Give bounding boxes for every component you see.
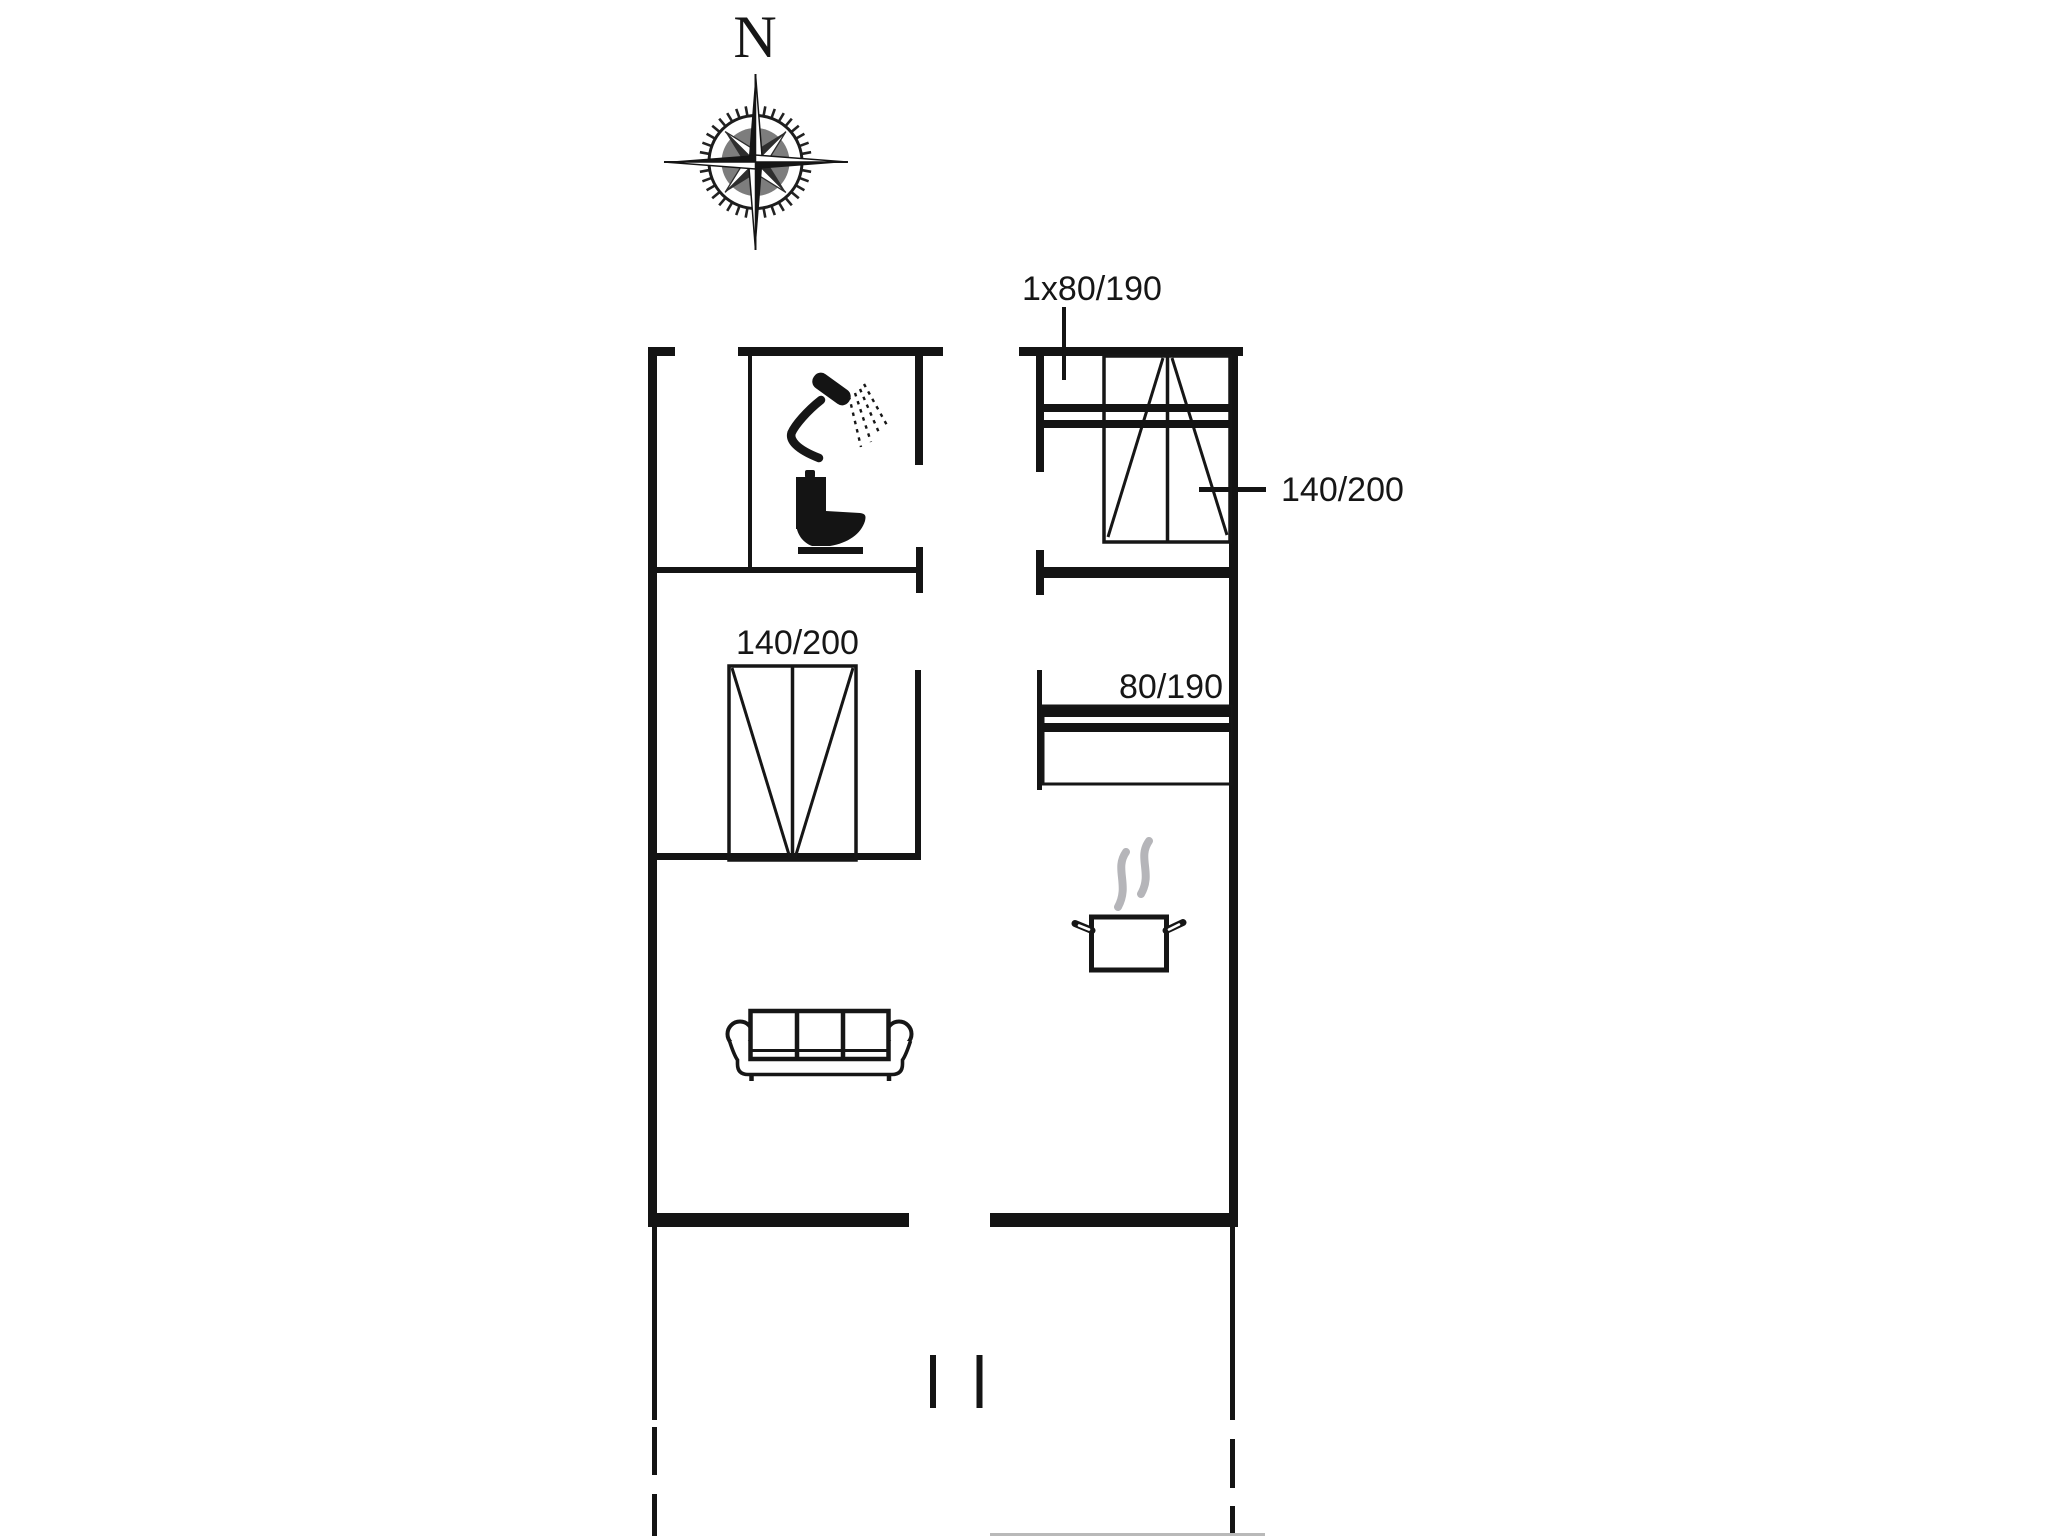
- svg-text:N: N: [733, 4, 776, 70]
- svg-text:140/200: 140/200: [736, 624, 859, 662]
- svg-text:1x80/190: 1x80/190: [1022, 270, 1162, 308]
- svg-text:140/200: 140/200: [1281, 471, 1404, 509]
- svg-text:80/190: 80/190: [1119, 668, 1223, 706]
